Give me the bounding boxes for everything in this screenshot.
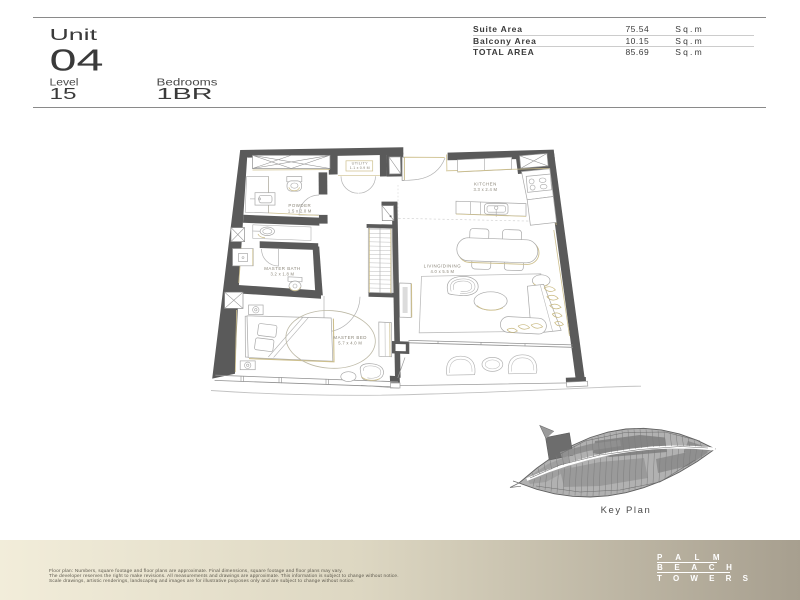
svg-text:5.7 x 4.0 M: 5.7 x 4.0 M: [338, 341, 362, 346]
svg-text:4.0 x 5.5 M: 4.0 x 5.5 M: [431, 269, 455, 274]
svg-text:3.2 x 1.8 M: 3.2 x 1.8 M: [271, 271, 295, 276]
svg-text:3.3 x 2.4 M: 3.3 x 2.4 M: [474, 187, 498, 192]
svg-text:MASTER BATH: MASTER BATH: [264, 266, 300, 271]
svg-text:LIVING/DINING: LIVING/DINING: [424, 264, 462, 269]
svg-text:POWDER: POWDER: [288, 203, 311, 208]
svg-text:KITCHEN: KITCHEN: [474, 182, 497, 187]
svg-text:1.5 x 2.0 M: 1.5 x 2.0 M: [288, 208, 312, 213]
svg-text:1.1 x 0.9 M: 1.1 x 0.9 M: [350, 166, 370, 170]
svg-text:UTILITY: UTILITY: [352, 162, 368, 166]
svg-text:MASTER BED: MASTER BED: [333, 335, 367, 340]
